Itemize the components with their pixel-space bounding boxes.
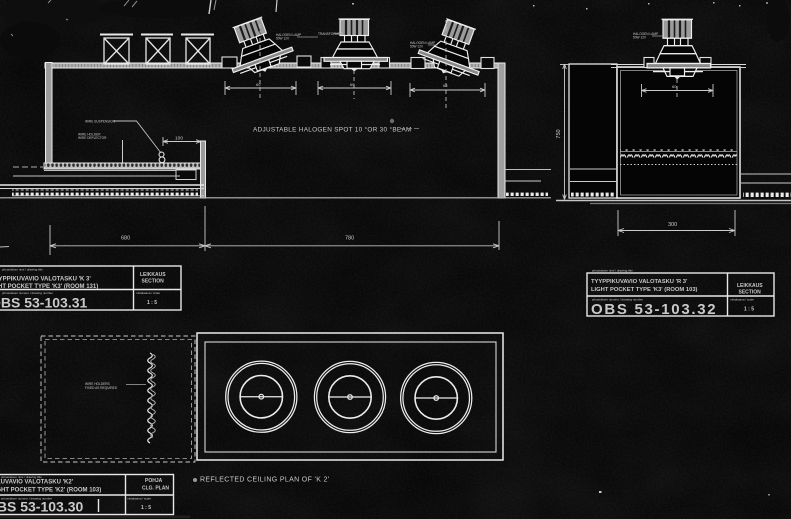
svg-text:60: 60 xyxy=(672,84,677,89)
svg-text:mittakaava / scale: mittakaava / scale xyxy=(127,496,151,500)
svg-text:750: 750 xyxy=(556,129,562,138)
svg-text:LIGHT POCKET TYPE 'K2' (ROOM: LIGHT POCKET TYPE 'K2' (ROOM 103) xyxy=(0,488,101,494)
svg-text:50W 12V: 50W 12V xyxy=(410,45,424,49)
svg-text:FIXED AS REQUIRED: FIXED AS REQUIRED xyxy=(85,386,118,390)
svg-text:50W 12V: 50W 12V xyxy=(633,36,647,40)
svg-text:REFLECTED CEILING PLAN OF 'K 2: REFLECTED CEILING PLAN OF 'K 2' xyxy=(200,477,329,484)
svg-text:680: 680 xyxy=(121,236,130,242)
svg-text:piirustuksen nimi / drawing ti: piirustuksen nimi / drawing title xyxy=(2,268,43,272)
svg-text:TYYPPIKUVAVIO VALOTASKU 'R 3': TYYPPIKUVAVIO VALOTASKU 'R 3' xyxy=(591,279,688,285)
svg-text:1 : 5: 1 : 5 xyxy=(147,300,157,306)
svg-text:WIRE DEFLECTOR: WIRE DEFLECTOR xyxy=(78,136,107,140)
svg-text:780: 780 xyxy=(345,236,354,242)
svg-text:60: 60 xyxy=(350,82,355,87)
svg-text:1 : 5: 1 : 5 xyxy=(141,505,151,511)
svg-text:OBS 53-103.31: OBS 53-103.31 xyxy=(0,295,87,311)
svg-text:mittakaava / scale: mittakaava / scale xyxy=(136,291,160,295)
svg-text:CLG. PLAN: CLG. PLAN xyxy=(142,486,169,492)
svg-text:TRANSFORMER: TRANSFORMER xyxy=(318,32,343,36)
svg-text:300: 300 xyxy=(668,222,677,228)
svg-text:LEIKKAUS: LEIKKAUS xyxy=(737,283,763,289)
svg-text:OBS 53-103.32: OBS 53-103.32 xyxy=(591,301,717,318)
svg-text:LIGHT POCKET TYPE 'K3' (ROOM: LIGHT POCKET TYPE 'K3' (ROOM 131) xyxy=(0,284,98,290)
svg-text:SECTION: SECTION xyxy=(739,290,762,296)
svg-text:LEIKKAUS: LEIKKAUS xyxy=(140,272,166,278)
svg-text:piirustuksen nimi / drawing ti: piirustuksen nimi / drawing title xyxy=(1,475,42,479)
svg-text:SECTION: SECTION xyxy=(142,279,165,285)
svg-text:OBS 53-103.30: OBS 53-103.30 xyxy=(0,499,83,515)
svg-text:WIRE SUSPENSION: WIRE SUSPENSION xyxy=(85,120,116,124)
svg-text:mittakaava / scale: mittakaava / scale xyxy=(730,298,754,302)
svg-text:POHJA: POHJA xyxy=(145,478,163,484)
svg-text:LIGHT POCKET TYPE 'K3' (ROOM: LIGHT POCKET TYPE 'K3' (ROOM 103) xyxy=(591,287,698,293)
svg-text:TYYPPIKUVAVIO VALOTASKU 'K2': TYYPPIKUVAVIO VALOTASKU 'K2' xyxy=(0,480,74,486)
svg-text:60: 60 xyxy=(256,82,261,87)
svg-text:1 : 5: 1 : 5 xyxy=(744,307,754,313)
svg-text:50W 12V: 50W 12V xyxy=(276,37,290,41)
svg-text:TYYPPIKUVAVIO VALOTASKU 'K 3': TYYPPIKUVAVIO VALOTASKU 'K 3' xyxy=(0,277,91,283)
svg-text:piirustuksen nimi / drawing ti: piirustuksen nimi / drawing title xyxy=(592,269,633,273)
svg-text:60: 60 xyxy=(443,83,448,88)
svg-text:100: 100 xyxy=(175,136,183,142)
svg-text:ADJUSTABLE HALOGEN SPOT 10 °O: ADJUSTABLE HALOGEN SPOT 10 °OR 30 °BEAM xyxy=(253,126,412,134)
